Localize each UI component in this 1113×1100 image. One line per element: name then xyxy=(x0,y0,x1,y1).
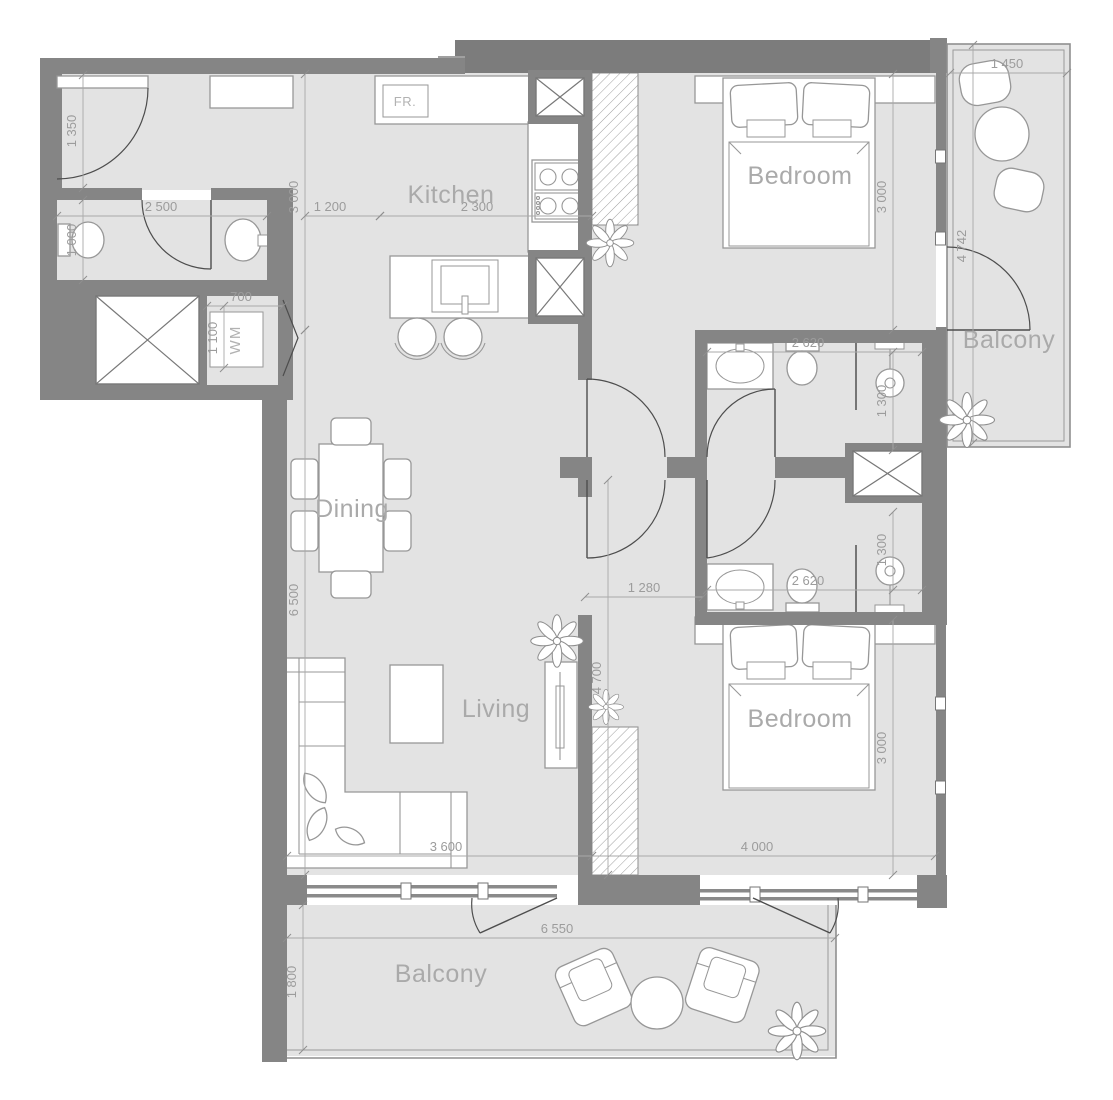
plant-icon xyxy=(940,393,995,448)
dimension-label: 1 450 xyxy=(991,56,1024,71)
dimension-label: 3 000 xyxy=(874,732,889,765)
dimension-label: 1 300 xyxy=(874,534,889,567)
dimension-label: 3 600 xyxy=(430,839,463,854)
dimension-label: 2 620 xyxy=(792,335,825,350)
dimension-label: 1 000 xyxy=(64,224,79,257)
wardrobe-bedroom-1 xyxy=(592,73,638,225)
shaft-laundry xyxy=(88,288,207,392)
dimension-label: 2 500 xyxy=(145,199,178,214)
dimension-label: 1 300 xyxy=(874,385,889,418)
dimension-label: 3 000 xyxy=(874,181,889,214)
dimension-label: 1 800 xyxy=(284,966,299,999)
dimension-label: 1 350 xyxy=(64,115,79,148)
floor-plan-page: 1 3501 0002 5003 0001 2002 3007001 1006 … xyxy=(0,0,1113,1100)
window-living xyxy=(307,883,557,899)
tv-unit xyxy=(545,662,577,768)
plant-icon xyxy=(586,219,634,267)
room-label-kitchen: Kitchen xyxy=(408,181,495,209)
dimension-label: 1 100 xyxy=(205,322,220,355)
dimension-label: 4 742 xyxy=(954,230,969,263)
coffee-table xyxy=(390,665,443,743)
dimension-label: 3 000 xyxy=(286,181,301,214)
shaft-kitchen-top xyxy=(528,70,592,124)
appliance-label-washing-machine: WM xyxy=(227,326,244,355)
dimension-label: 6 500 xyxy=(286,584,301,617)
shaft-kitchen-bottom xyxy=(528,250,592,324)
window-wall-bedroom-2 xyxy=(936,620,947,875)
stove-icon xyxy=(532,160,585,222)
dimension-label: 6 550 xyxy=(541,921,574,936)
room-label-balcony-lower: Balcony xyxy=(395,960,487,988)
room-label-dining: Dining xyxy=(315,495,389,523)
dimension-label: 4 700 xyxy=(589,662,604,695)
dimension-label: 4 000 xyxy=(741,839,774,854)
dimension-label: 700 xyxy=(230,289,252,304)
entry-cabinet xyxy=(210,76,293,108)
room-label-bedroom-1: Bedroom xyxy=(748,162,853,190)
room-label-living: Living xyxy=(462,695,530,723)
apartment-floor-plan: 1 3501 0002 5003 0001 2002 3007001 1006 … xyxy=(0,0,1113,1100)
wardrobe-bedroom-2 xyxy=(592,727,638,875)
kitchen-island xyxy=(390,256,530,318)
appliance-label-fridge: FR. xyxy=(394,94,416,109)
dimension-label: 1 200 xyxy=(314,199,347,214)
window-wall-bedroom-1 xyxy=(936,73,948,335)
dimension-label: 1 280 xyxy=(628,580,661,595)
room-label-balcony-upper: Balcony xyxy=(963,326,1055,354)
shaft-bathrooms xyxy=(845,443,930,503)
window-bedroom-2-south xyxy=(700,887,917,902)
plant-icon xyxy=(531,615,584,668)
room-label-bedroom-2: Bedroom xyxy=(748,705,853,733)
dimension-label: 2 620 xyxy=(792,573,825,588)
plant-icon xyxy=(768,1002,826,1060)
